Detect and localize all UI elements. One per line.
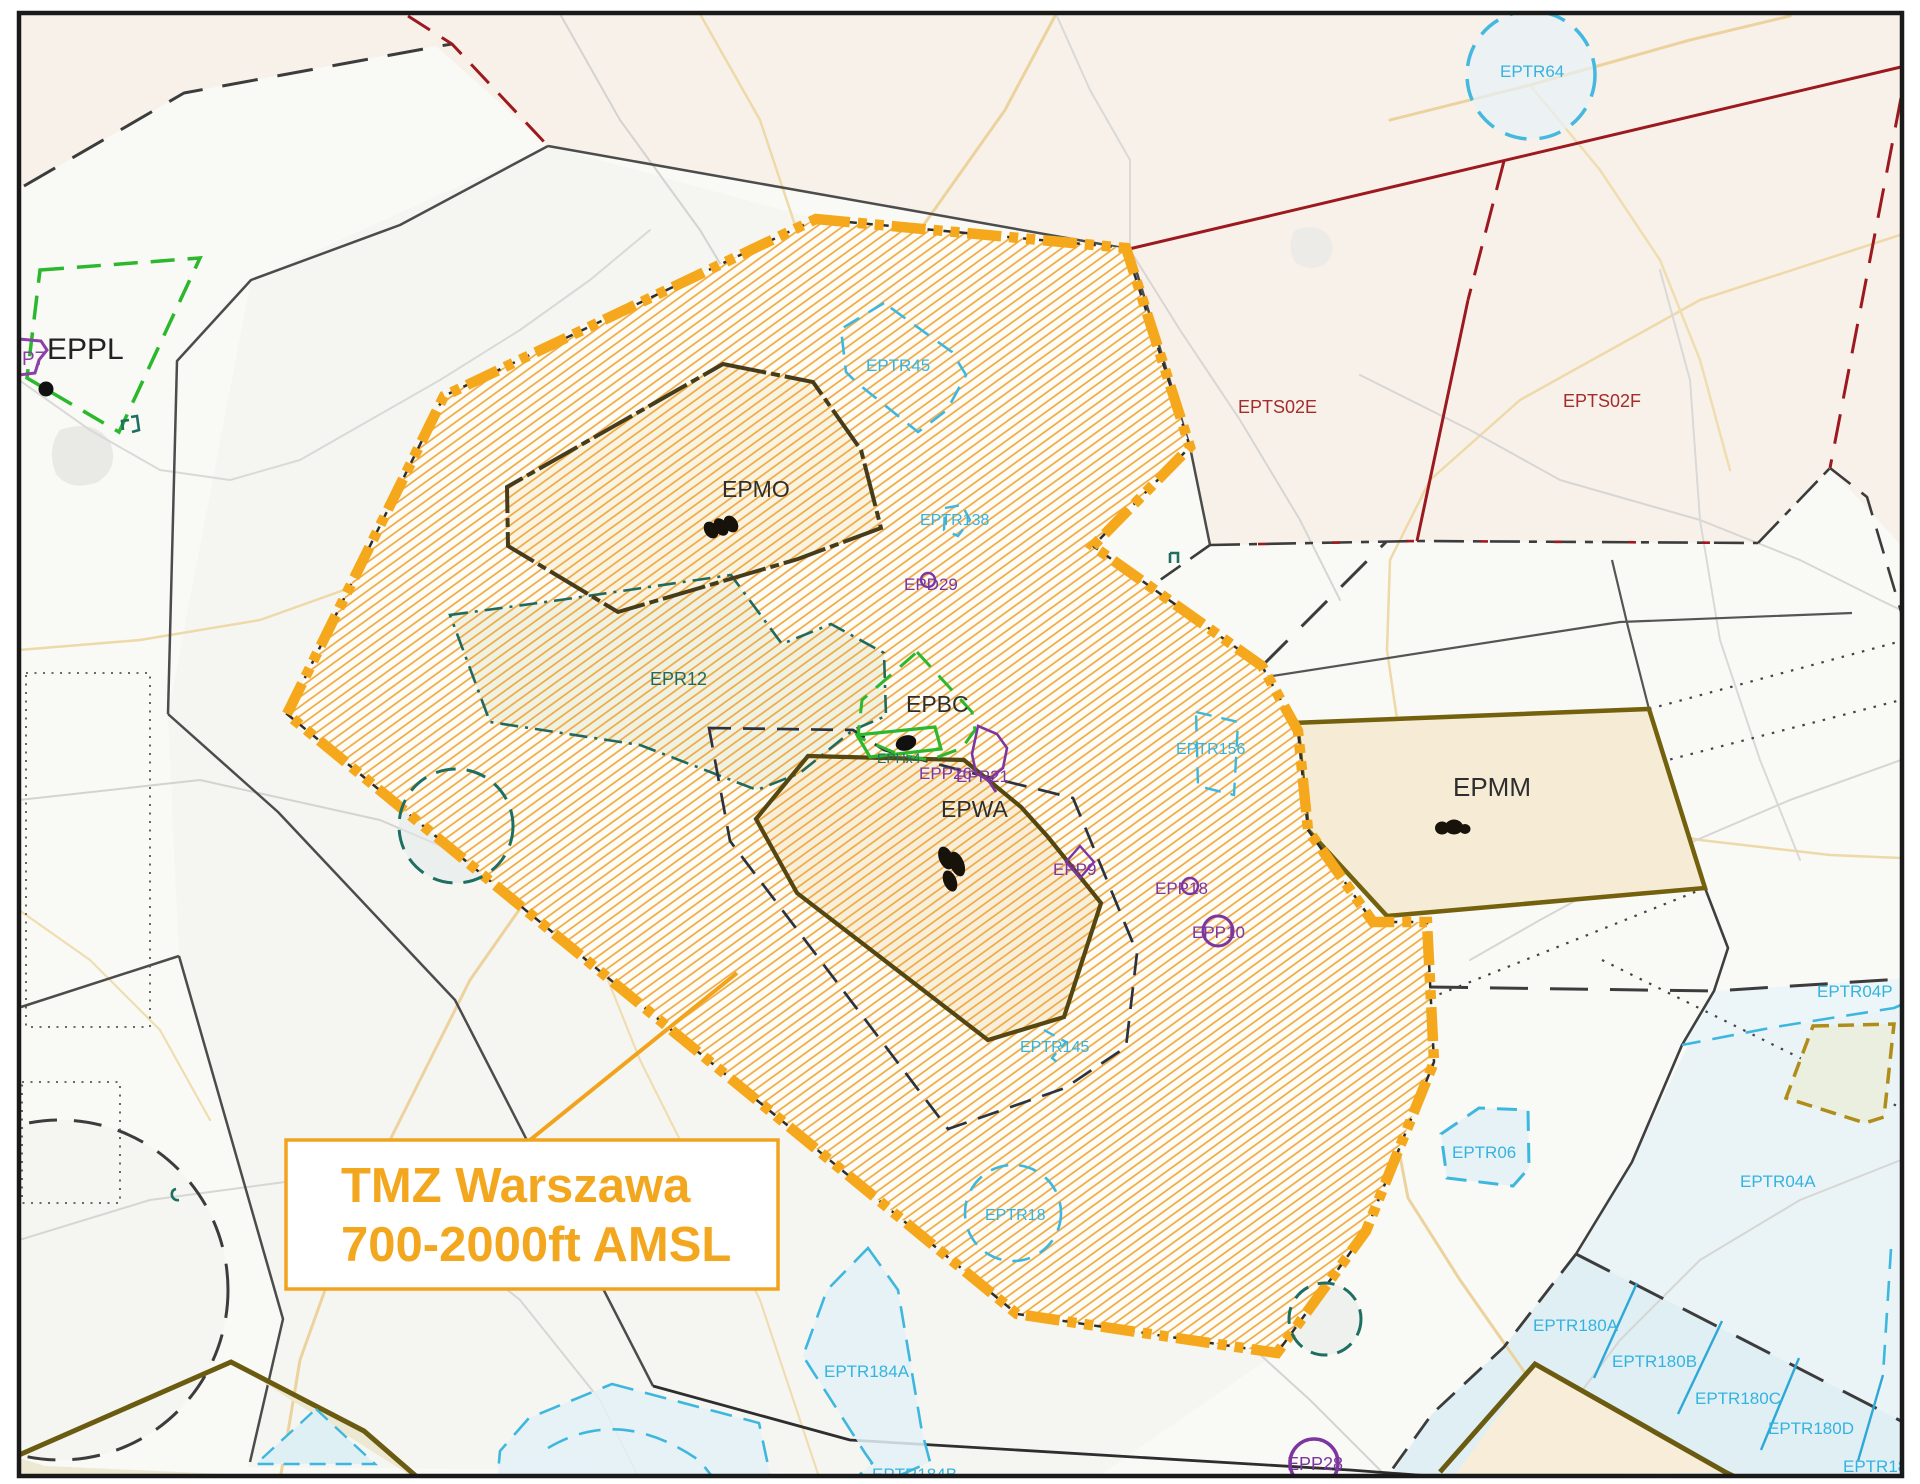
svg-text:EPTS02E: EPTS02E xyxy=(1238,397,1317,417)
svg-text:EPTR156: EPTR156 xyxy=(1176,741,1245,758)
svg-text:EPTR145: EPTR145 xyxy=(1020,1039,1089,1056)
svg-text:EPTR180D: EPTR180D xyxy=(1768,1419,1854,1438)
svg-text:EPTR180B: EPTR180B xyxy=(1612,1352,1697,1371)
svg-text:EPTS02F: EPTS02F xyxy=(1563,391,1641,411)
svg-text:EPTR180A: EPTR180A xyxy=(1533,1316,1619,1335)
svg-text:P7: P7 xyxy=(22,349,45,370)
svg-text:EPP28: EPP28 xyxy=(1287,1454,1343,1474)
svg-text:EPD29: EPD29 xyxy=(904,575,958,594)
svg-text:700-2000ft AMSL: 700-2000ft AMSL xyxy=(341,1218,731,1272)
svg-text:EPP10: EPP10 xyxy=(1192,923,1245,942)
svg-text:EPTR18: EPTR18 xyxy=(985,1207,1046,1224)
svg-text:EPP18: EPP18 xyxy=(1155,879,1208,898)
svg-text:EPMO: EPMO xyxy=(722,476,790,502)
svg-text:EPTR180C: EPTR180C xyxy=(1695,1389,1781,1408)
svg-text:EPTR18: EPTR18 xyxy=(1843,1457,1907,1476)
svg-text:EPR12: EPR12 xyxy=(650,669,707,689)
svg-text:EPHx4: EPHx4 xyxy=(877,750,921,766)
svg-text:EPMM: EPMM xyxy=(1453,772,1531,802)
svg-text:EPPL: EPPL xyxy=(47,333,124,366)
svg-text:EPP21: EPP21 xyxy=(956,767,1009,786)
svg-text:EPTR04P: EPTR04P xyxy=(1817,982,1893,1001)
svg-text:EPTR45: EPTR45 xyxy=(866,356,930,375)
svg-text:EPBC: EPBC xyxy=(906,691,969,717)
svg-text:EPTR184A: EPTR184A xyxy=(824,1362,910,1381)
svg-text:TMZ Warszawa: TMZ Warszawa xyxy=(341,1159,691,1213)
svg-text:EPTR06: EPTR06 xyxy=(1452,1143,1516,1162)
svg-text:EPTR04A: EPTR04A xyxy=(1740,1172,1816,1191)
svg-text:EPTR138: EPTR138 xyxy=(920,512,989,529)
svg-text:EPP9: EPP9 xyxy=(1053,860,1096,879)
svg-text:EPWA: EPWA xyxy=(941,796,1009,822)
svg-text:EPTR64: EPTR64 xyxy=(1500,62,1564,81)
